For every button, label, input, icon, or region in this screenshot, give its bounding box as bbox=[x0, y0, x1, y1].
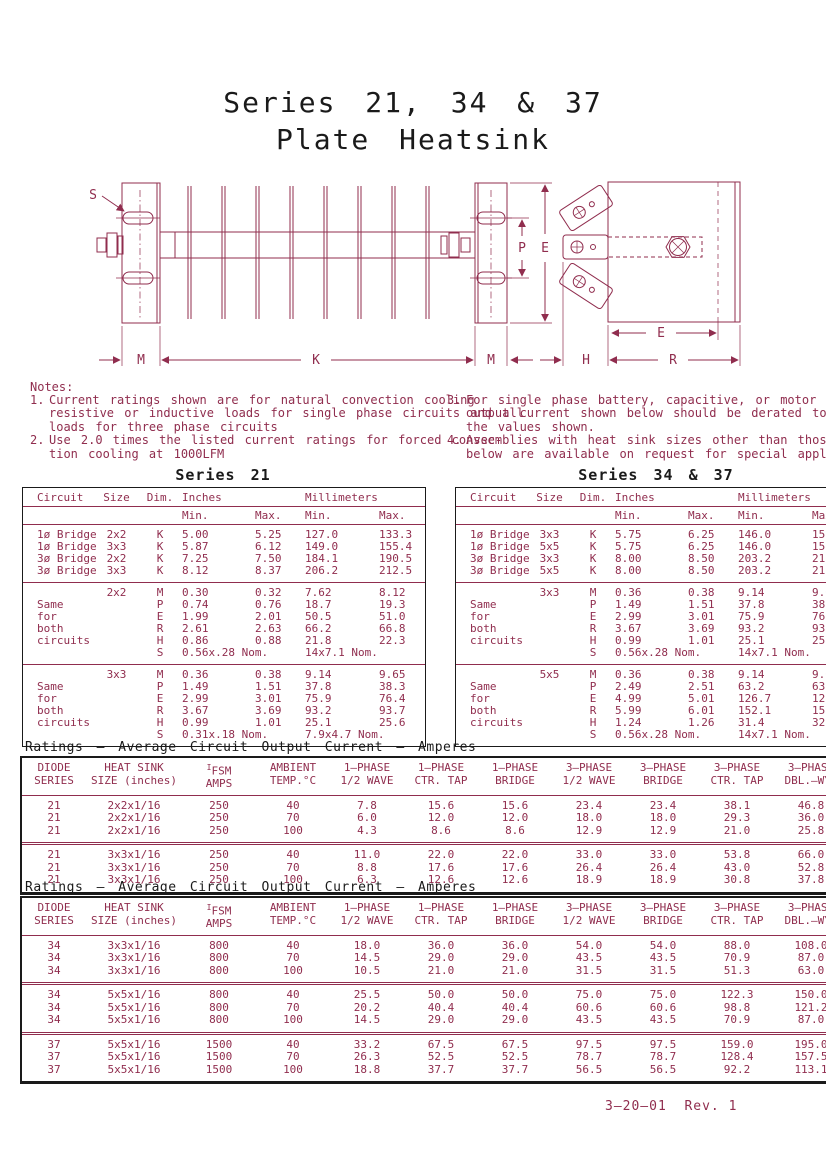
table-group: 343x3x1/168004018.036.036.054.054.088.01… bbox=[22, 936, 826, 983]
table-cell bbox=[810, 491, 826, 504]
column-header: DIODESERIES bbox=[22, 902, 86, 931]
header-line1: 1–PHASE bbox=[404, 902, 478, 915]
table-cell: 0.56x.28 Nom. bbox=[613, 647, 686, 659]
table-cell: S bbox=[571, 729, 613, 741]
table-row: S0.56x.28 Nom.14x7.1 Nom. bbox=[23, 647, 425, 659]
column-header: 1–PHASEBRIDGE bbox=[478, 762, 552, 791]
table-cell: Min. bbox=[736, 509, 810, 522]
table-cell: circuits bbox=[456, 717, 526, 729]
table-cell: 100 bbox=[256, 1014, 330, 1027]
ratings1-title: Ratings – Average Circuit Output Current… bbox=[25, 740, 476, 755]
header-line1: 3–PHASE bbox=[552, 762, 626, 775]
table-cell: 3x3x1/16 bbox=[86, 849, 182, 862]
column-header: IFSMAMPS bbox=[182, 902, 256, 931]
table-cell: 29.3 bbox=[700, 812, 774, 825]
table-cell: 14x7.1 Nom. bbox=[736, 647, 810, 659]
table-cell: 92.2 bbox=[700, 1064, 774, 1077]
table-cell: 50.0 bbox=[404, 989, 478, 1002]
table-cell: 21 bbox=[22, 812, 86, 825]
note-number: 1. bbox=[30, 394, 49, 434]
table-cell: Max. bbox=[810, 509, 826, 522]
table-row: S0.56x.28 Nom.14x7.1 Nom. bbox=[456, 647, 826, 659]
table-group: 212x2x1/16250407.815.615.623.423.438.146… bbox=[22, 796, 826, 843]
table-cell: Same bbox=[456, 599, 526, 611]
header-line2: BRIDGE bbox=[478, 915, 552, 928]
table-cell: 14.5 bbox=[330, 1014, 404, 1027]
table-cell bbox=[526, 681, 571, 693]
column-header: 3–PHASE1/2 WAVE bbox=[552, 902, 626, 931]
table-cell: Inches bbox=[613, 491, 686, 504]
header-line2: BRIDGE bbox=[478, 775, 552, 788]
header-line2: AMPS bbox=[182, 778, 256, 791]
header-line2: CTR. TAP bbox=[700, 775, 774, 788]
header-line1: 1–PHASE bbox=[404, 762, 478, 775]
table-cell: 128.4 bbox=[700, 1051, 774, 1064]
table-cell: 21.0 bbox=[700, 825, 774, 838]
table-group: 3x3M0.360.389.149.65SameP1.491.5137.838.… bbox=[456, 582, 826, 664]
column-header: 3–PHASEDBL.–WYE bbox=[774, 902, 826, 931]
table-group: 1ø Bridge2x2K5.005.25127.0133.31ø Bridge… bbox=[23, 525, 425, 582]
table-header-row: DIODESERIESHEAT SINKSIZE (inches)IFSMAMP… bbox=[22, 758, 826, 796]
header-line1: HEAT SINK bbox=[86, 902, 182, 915]
table-cell: 37.7 bbox=[478, 1064, 552, 1077]
note-line: For single phase battery, capacitive, or… bbox=[466, 394, 826, 407]
table-cell: 800 bbox=[182, 952, 256, 965]
table-cell: 800 bbox=[182, 965, 256, 978]
table-row: 343x3x1/1680010010.521.021.031.531.551.3… bbox=[22, 965, 826, 978]
column-header: 1–PHASE1/2 WAVE bbox=[330, 762, 404, 791]
column-header: IFSMAMPS bbox=[182, 762, 256, 791]
table-cell bbox=[571, 509, 613, 522]
table-cell: 3x3 bbox=[93, 669, 138, 681]
table-cell: 21.0 bbox=[404, 965, 478, 978]
table-cell: 33.0 bbox=[552, 849, 626, 862]
table-cell: 70 bbox=[256, 952, 330, 965]
table-cell: circuits bbox=[23, 635, 93, 647]
table-cell: 31.5 bbox=[552, 965, 626, 978]
table-group: 1ø Bridge3x3K5.756.25146.0158.71ø Bridge… bbox=[456, 525, 826, 582]
ratings-table-series34-37: DIODESERIESHEAT SINKSIZE (inches)IFSMAMP… bbox=[20, 896, 826, 1084]
note-line: the values shown. bbox=[466, 421, 826, 434]
table-row: 375x5x1/16150010018.837.737.756.556.592.… bbox=[22, 1064, 826, 1077]
table-cell: 50.0 bbox=[478, 989, 552, 1002]
table-cell: Dim. bbox=[138, 491, 180, 504]
table-group: 3x3M0.360.389.149.65SameP1.491.5137.838.… bbox=[23, 664, 425, 746]
table-cell: Min. bbox=[613, 509, 686, 522]
table-cell bbox=[810, 647, 826, 659]
dim-label-m-left: M bbox=[137, 353, 145, 368]
table-cell bbox=[93, 509, 138, 522]
table-cell: Circuit bbox=[23, 491, 93, 504]
table-cell: 212.5 bbox=[377, 565, 425, 577]
table-cell: Max. bbox=[253, 509, 303, 522]
table-cell: 29.0 bbox=[404, 952, 478, 965]
header-line2: DBL.–WYE bbox=[774, 915, 826, 928]
table-cell: 3ø Bridge bbox=[456, 565, 526, 577]
table-cell: Same bbox=[23, 681, 93, 693]
note-line: Assemblies with heat sink sizes other th… bbox=[466, 434, 826, 447]
header-line2: DBL.–WYE bbox=[774, 775, 826, 788]
header-line2: TEMP.°C bbox=[256, 775, 330, 788]
table-cell: 8.37 bbox=[253, 565, 303, 577]
header-line2: CTR. TAP bbox=[404, 915, 478, 928]
header-line2: 1/2 WAVE bbox=[552, 775, 626, 788]
table-cell: 250 bbox=[182, 849, 256, 862]
header-line2: 1/2 WAVE bbox=[330, 775, 404, 788]
table-cell: 12.9 bbox=[626, 825, 700, 838]
series21-title: Series 21 bbox=[22, 466, 424, 484]
table-cell: Min. bbox=[180, 509, 253, 522]
header-line1: 3–PHASE bbox=[552, 902, 626, 915]
table-cell: Inches bbox=[180, 491, 253, 504]
table-cell: 12.0 bbox=[404, 812, 478, 825]
header-line2: BRIDGE bbox=[626, 775, 700, 788]
table-cell: 2x2x1/16 bbox=[86, 812, 182, 825]
table-cell bbox=[686, 491, 736, 504]
table-cell: 1500 bbox=[182, 1051, 256, 1064]
table-cell: 8.6 bbox=[404, 825, 478, 838]
series21-dimension-table: CircuitSizeDim.InchesMillimetersMin.Max.… bbox=[22, 487, 426, 747]
table-cell: 25.6 bbox=[377, 717, 425, 729]
table-row: forE1.992.0150.551.0 bbox=[23, 611, 425, 623]
table-cell bbox=[93, 635, 138, 647]
table-cell: 2x2 bbox=[93, 587, 138, 599]
table-cell: circuits bbox=[456, 635, 526, 647]
table-cell: 22.0 bbox=[404, 849, 478, 862]
table-cell bbox=[93, 599, 138, 611]
table-cell: 22.3 bbox=[377, 635, 425, 647]
table-cell: 34 bbox=[22, 1014, 86, 1027]
table-cell: 78.7 bbox=[552, 1051, 626, 1064]
table-cell: 34 bbox=[22, 952, 86, 965]
header-line1: IFSM bbox=[182, 902, 256, 918]
table-cell: Millimeters bbox=[303, 491, 377, 504]
drawing-geometry bbox=[97, 182, 740, 366]
header-line1: 3–PHASE bbox=[700, 902, 774, 915]
table-cell: K bbox=[138, 565, 180, 577]
header-line1: 3–PHASE bbox=[700, 762, 774, 775]
table-cell: 70.9 bbox=[700, 1014, 774, 1027]
table-row: 345x5x1/1680010014.529.029.043.543.570.9… bbox=[22, 1014, 826, 1027]
table-cell: 14x7.1 Nom. bbox=[303, 647, 377, 659]
table-cell: Millimeters bbox=[736, 491, 810, 504]
table-cell bbox=[526, 717, 571, 729]
table-cell bbox=[377, 647, 425, 659]
table-row: S0.56x.28 Nom.14x7.1 Nom. bbox=[456, 729, 826, 741]
table-cell: 150.0 bbox=[774, 989, 826, 1002]
table-cell: 5x5 bbox=[526, 565, 571, 577]
table-cell: 25.6 bbox=[810, 635, 826, 647]
table-cell: Size bbox=[526, 491, 571, 504]
table-cell bbox=[686, 729, 736, 741]
table-cell: 113.1 bbox=[774, 1064, 826, 1077]
header-line1: 1–PHASE bbox=[330, 902, 404, 915]
table-cell bbox=[526, 705, 571, 717]
header-line1: 3–PHASE bbox=[774, 902, 826, 915]
header-line1: DIODE bbox=[22, 902, 86, 915]
table-cell: circuits bbox=[23, 717, 93, 729]
table-cell bbox=[23, 647, 93, 659]
table-cell: 29.0 bbox=[404, 1014, 478, 1027]
table-cell: 800 bbox=[182, 1014, 256, 1027]
table-cell: 51.3 bbox=[700, 965, 774, 978]
table-cell: 206.2 bbox=[303, 565, 377, 577]
table-cell: 250 bbox=[182, 825, 256, 838]
table-cell: 14.5 bbox=[330, 952, 404, 965]
fins bbox=[188, 186, 429, 319]
series3437-dimension-table: CircuitSizeDim.InchesMillimetersMin.Max.… bbox=[455, 487, 826, 747]
table-row: CircuitSizeDim.InchesMillimeters bbox=[23, 488, 425, 507]
table-cell: 100 bbox=[256, 965, 330, 978]
table-cell: 122.3 bbox=[700, 989, 774, 1002]
series3437-title: Series 34 & 37 bbox=[455, 466, 826, 484]
table-row: Min.Max.Min.Max. bbox=[23, 507, 425, 525]
table-cell bbox=[526, 635, 571, 647]
dim-label-e-width: E bbox=[657, 326, 665, 341]
header-line1: DIODE bbox=[22, 762, 86, 775]
table-cell: 32.0 bbox=[810, 717, 826, 729]
table-cell: 4.3 bbox=[330, 825, 404, 838]
table-row: 2x2M0.300.327.628.12 bbox=[23, 587, 425, 599]
note-line: Use 2.0 times the listed current ratings… bbox=[49, 434, 502, 447]
table-row: 3ø Bridge3x3K8.128.37206.2212.5 bbox=[23, 565, 425, 577]
table-row: CircuitSizeDim.InchesMillimeters bbox=[456, 488, 826, 507]
column-header: 3–PHASE1/2 WAVE bbox=[552, 762, 626, 791]
table-cell: 25.8 bbox=[774, 825, 826, 838]
column-header: DIODESERIES bbox=[22, 762, 86, 791]
table-cell: 3ø Bridge bbox=[23, 565, 93, 577]
header-line1: 1–PHASE bbox=[478, 762, 552, 775]
table-cell bbox=[526, 647, 571, 659]
table-cell: Size bbox=[93, 491, 138, 504]
table-cell: 12.9 bbox=[552, 825, 626, 838]
table-cell: 8.50 bbox=[686, 565, 736, 577]
table-cell: 18.0 bbox=[552, 812, 626, 825]
table-row: 343x3x1/168007014.529.029.043.543.570.98… bbox=[22, 952, 826, 965]
nut bbox=[449, 233, 459, 257]
note-number: 2. bbox=[30, 434, 49, 461]
header-line2: AMPS bbox=[182, 918, 256, 931]
column-header: 1–PHASEBRIDGE bbox=[478, 902, 552, 931]
table-cell: 100 bbox=[256, 1064, 330, 1077]
table-cell: 43.5 bbox=[552, 952, 626, 965]
table-cell: 18.0 bbox=[626, 812, 700, 825]
dim-label-r: R bbox=[669, 353, 677, 368]
table-cell bbox=[456, 509, 526, 522]
table-cell: Max. bbox=[377, 509, 425, 522]
table-cell: 40 bbox=[256, 989, 330, 1002]
column-header: 1–PHASECTR. TAP bbox=[404, 902, 478, 931]
header-line1: 3–PHASE bbox=[626, 902, 700, 915]
table-row: 213x3x1/162504011.022.022.033.033.053.86… bbox=[22, 849, 826, 862]
table-cell: 800 bbox=[182, 989, 256, 1002]
table-group: 375x5x1/1615004033.267.567.597.597.5159.… bbox=[22, 1032, 826, 1082]
header-line1: 1–PHASE bbox=[330, 762, 404, 775]
hex-bolt bbox=[666, 237, 690, 258]
table-cell bbox=[526, 599, 571, 611]
table-cell: K bbox=[571, 565, 613, 577]
table-cell: 21.0 bbox=[478, 965, 552, 978]
column-header: AMBIENTTEMP.°C bbox=[256, 762, 330, 791]
header-line2: SIZE (inches) bbox=[86, 915, 182, 928]
table-cell bbox=[456, 647, 526, 659]
table-cell: 3x3x1/16 bbox=[86, 965, 182, 978]
table-cell: 87.0 bbox=[774, 1014, 826, 1027]
dim-label-p: P bbox=[518, 241, 526, 256]
table-cell bbox=[93, 681, 138, 693]
table-cell: Max. bbox=[686, 509, 736, 522]
header-line2: SIZE (inches) bbox=[86, 775, 182, 788]
column-header: 3–PHASEBRIDGE bbox=[626, 902, 700, 931]
table-cell: 78.7 bbox=[626, 1051, 700, 1064]
table-cell bbox=[526, 509, 571, 522]
table-cell: 25.5 bbox=[330, 989, 404, 1002]
column-header: 3–PHASECTR. TAP bbox=[700, 762, 774, 791]
table-cell: 5x5x1/16 bbox=[86, 1064, 182, 1077]
superscript: I bbox=[207, 903, 212, 912]
table-cell bbox=[93, 611, 138, 623]
s-leader-arrow bbox=[102, 196, 124, 211]
table-cell: 0.56x.28 Nom. bbox=[180, 647, 253, 659]
table-cell: 21 bbox=[22, 825, 86, 838]
table-cell bbox=[526, 693, 571, 705]
table-cell: 21 bbox=[22, 849, 86, 862]
table-group: 345x5x1/168004025.550.050.075.075.0122.3… bbox=[22, 982, 826, 1032]
table-cell bbox=[253, 647, 303, 659]
dim-label-s: S bbox=[89, 188, 97, 203]
header-line1: 3–PHASE bbox=[774, 762, 826, 775]
table-row: 375x5x1/1615007026.352.552.578.778.7128.… bbox=[22, 1051, 826, 1064]
revision-footer: 3–20–01 Rev. 1 bbox=[605, 1099, 737, 1114]
note-text: Assemblies with heat sink sizes other th… bbox=[466, 434, 826, 461]
header-line1: IFSM bbox=[182, 762, 256, 778]
table-cell: 12.6 bbox=[478, 874, 552, 887]
header-line1: HEAT SINK bbox=[86, 762, 182, 775]
table-cell: 3x3x1/16 bbox=[86, 952, 182, 965]
ratings2-title: Ratings – Average Circuit Output Current… bbox=[25, 880, 476, 895]
table-row: 3ø Bridge5x5K8.008.50203.2215.9 bbox=[456, 565, 826, 577]
table-cell: 100 bbox=[256, 825, 330, 838]
table-cell: Same bbox=[23, 599, 93, 611]
table-cell bbox=[253, 491, 303, 504]
table-cell: Dim. bbox=[571, 491, 613, 504]
table-cell: 56.5 bbox=[626, 1064, 700, 1077]
note-text: Use 2.0 times the listed current ratings… bbox=[49, 434, 502, 461]
table-cell: 203.2 bbox=[736, 565, 810, 577]
table-cell: 70 bbox=[256, 812, 330, 825]
header-line2: BRIDGE bbox=[626, 915, 700, 928]
note-text: For single phase battery, capacitive, or… bbox=[466, 394, 826, 434]
table-row: forE2.993.0175.976.4 bbox=[23, 693, 425, 705]
column-header: 3–PHASECTR. TAP bbox=[700, 902, 774, 931]
table-cell bbox=[526, 729, 571, 741]
table-cell: 18.9 bbox=[552, 874, 626, 887]
column-header: 1–PHASECTR. TAP bbox=[404, 762, 478, 791]
table-cell: 8.12 bbox=[180, 565, 253, 577]
header-line1: 1–PHASE bbox=[478, 902, 552, 915]
table-cell: 250 bbox=[182, 812, 256, 825]
table-cell bbox=[93, 717, 138, 729]
dim-label-h: H bbox=[582, 353, 590, 368]
table-cell: 66.0 bbox=[774, 849, 826, 862]
page-title: Series 21, 34 & 37 Plate Heatsink bbox=[0, 84, 826, 158]
page-title-line1: Series 21, 34 & 37 bbox=[0, 84, 826, 121]
table-cell: 29.0 bbox=[478, 952, 552, 965]
table-cell: 40 bbox=[256, 849, 330, 862]
table-cell: 3x3 bbox=[526, 587, 571, 599]
table-cell: Min. bbox=[303, 509, 377, 522]
note-item: 3.For single phase battery, capacitive, … bbox=[447, 394, 826, 434]
column-header: 3–PHASEBRIDGE bbox=[626, 762, 700, 791]
header-line2: 1/2 WAVE bbox=[330, 915, 404, 928]
column-header: 1–PHASE1/2 WAVE bbox=[330, 902, 404, 931]
table-cell: 14x7.1 Nom. bbox=[736, 729, 810, 741]
table-cell: 36.0 bbox=[774, 812, 826, 825]
superscript: I bbox=[207, 763, 212, 772]
note-line: below are available on request for speci… bbox=[466, 448, 826, 461]
table-cell bbox=[93, 693, 138, 705]
table-cell: 5x5x1/16 bbox=[86, 1051, 182, 1064]
column-header: HEAT SINKSIZE (inches) bbox=[86, 762, 182, 791]
table-cell: S bbox=[571, 647, 613, 659]
table-cell: 52.5 bbox=[404, 1051, 478, 1064]
table-cell: 18.9 bbox=[626, 874, 700, 887]
table-cell: 75.0 bbox=[552, 989, 626, 1002]
table-cell: 52.5 bbox=[478, 1051, 552, 1064]
table-cell: 26.3 bbox=[330, 1051, 404, 1064]
note-line: tion cooling at 1000LFM bbox=[49, 448, 502, 461]
table-cell: 157.5 bbox=[774, 1051, 826, 1064]
table-row: SameP0.740.7618.719.3 bbox=[23, 599, 425, 611]
table-cell: 1500 bbox=[182, 1064, 256, 1077]
header-line2: 1/2 WAVE bbox=[552, 915, 626, 928]
table-row: 212x2x1/16250706.012.012.018.018.029.336… bbox=[22, 812, 826, 825]
dim-label-e-height: E bbox=[541, 241, 549, 256]
table-cell: 37 bbox=[22, 1064, 86, 1077]
dim-label-m-right: M bbox=[487, 353, 495, 368]
table-cell bbox=[138, 509, 180, 522]
table-row: Min.Max.Min.Max. bbox=[456, 507, 826, 525]
note-number: 3. bbox=[447, 394, 466, 434]
stud bbox=[97, 238, 106, 252]
header-line2: TEMP.°C bbox=[256, 915, 330, 928]
datasheet-page: Series 21, 34 & 37 Plate Heatsink bbox=[0, 0, 826, 1169]
table-cell: 63.0 bbox=[774, 965, 826, 978]
table-cell: 29.0 bbox=[478, 1014, 552, 1027]
table-cell: 3x3 bbox=[93, 565, 138, 577]
table-cell: Same bbox=[456, 681, 526, 693]
table-cell: 5x5 bbox=[526, 669, 571, 681]
table-cell: 34 bbox=[22, 989, 86, 1002]
left-plate bbox=[122, 183, 160, 323]
table-cell: 70.9 bbox=[700, 952, 774, 965]
table-cell: 53.8 bbox=[700, 849, 774, 862]
note-line: output current shown below should be der… bbox=[466, 407, 826, 420]
note-number: 4. bbox=[447, 434, 466, 461]
table-cell: 37.7 bbox=[404, 1064, 478, 1077]
table-cell: 31.5 bbox=[626, 965, 700, 978]
table-cell: 75.0 bbox=[626, 989, 700, 1002]
table-cell: 87.0 bbox=[774, 952, 826, 965]
table-cell: 43.5 bbox=[626, 1014, 700, 1027]
table-cell: 8.00 bbox=[613, 565, 686, 577]
table-cell bbox=[810, 729, 826, 741]
header-line2: CTR. TAP bbox=[700, 915, 774, 928]
table-cell: 12.0 bbox=[478, 812, 552, 825]
dim-label-k: K bbox=[312, 353, 320, 368]
table-cell: 37.8 bbox=[774, 874, 826, 887]
table-cell: 2x2x1/16 bbox=[86, 825, 182, 838]
